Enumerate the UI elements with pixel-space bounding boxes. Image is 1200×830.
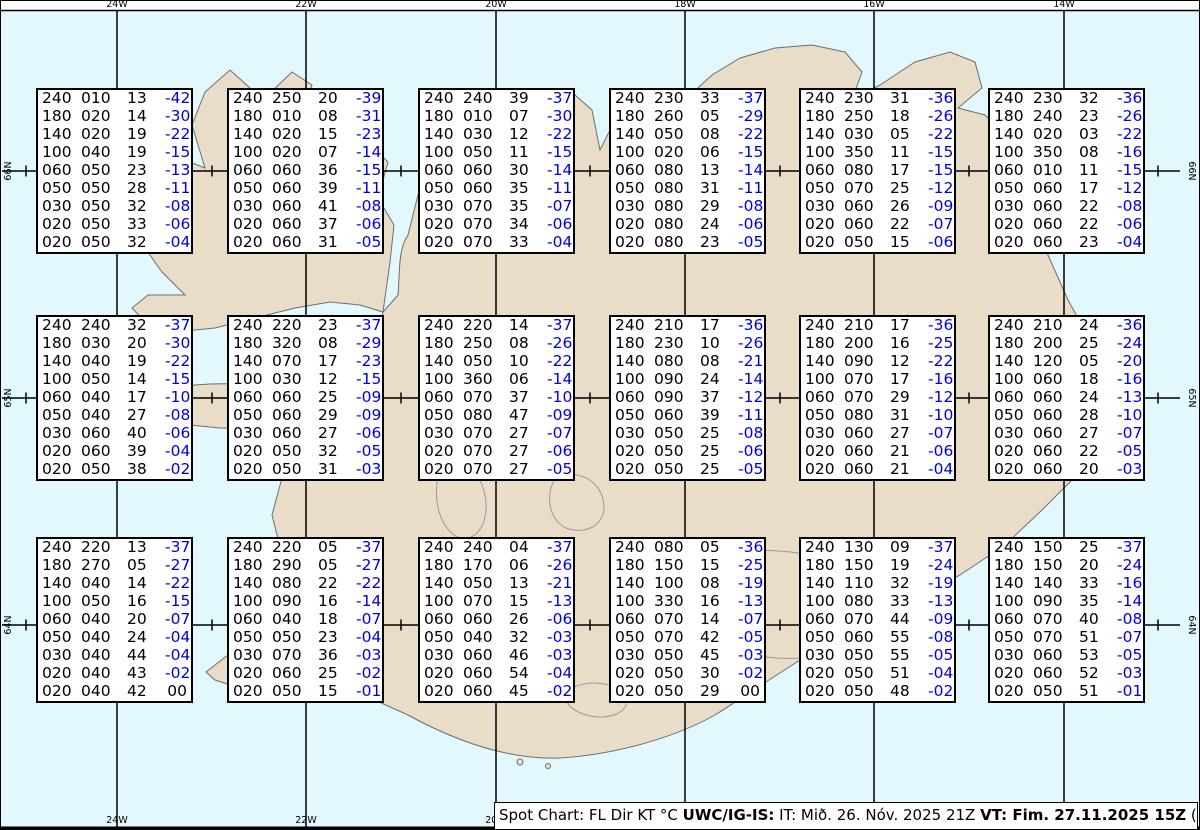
temp-value: -04 — [356, 629, 381, 647]
temp-value: -14 — [738, 371, 763, 389]
fl-value: 180 — [615, 557, 654, 575]
fl-value: 240 — [42, 90, 81, 108]
dir-value: 060 — [463, 683, 509, 701]
station-data-row: 18026005-29 — [615, 108, 760, 126]
fl-value: 020 — [994, 665, 1033, 683]
dir-value: 090 — [272, 593, 318, 611]
kt-value: 08 — [318, 335, 356, 353]
dir-value: 090 — [654, 389, 700, 407]
fl-value: 140 — [805, 575, 844, 593]
fl-value: 020 — [233, 683, 272, 701]
station-data-row: 10006018-16 — [994, 371, 1139, 389]
latitude-label: 64N — [1186, 615, 1196, 634]
longitude-label: 14W — [1053, 0, 1074, 10]
kt-value: 29 — [700, 683, 738, 701]
fl-value: 050 — [805, 407, 844, 425]
temp-value: -37 — [165, 317, 190, 335]
fl-value: 100 — [994, 593, 1033, 611]
kt-value: 08 — [700, 575, 738, 593]
fl-value: 100 — [805, 371, 844, 389]
kt-value: 03 — [1079, 126, 1117, 144]
fl-value: 020 — [994, 683, 1033, 701]
fl-value: 020 — [233, 665, 272, 683]
station-data-row: 05008047-09 — [424, 407, 569, 425]
temp-value: -26 — [738, 335, 763, 353]
station-data-row: 18032008-29 — [233, 335, 378, 353]
fl-value: 020 — [615, 683, 654, 701]
station-data-row: 18025018-26 — [805, 108, 950, 126]
kt-value: 15 — [318, 683, 356, 701]
dir-value: 050 — [81, 216, 127, 234]
fl-value: 020 — [424, 665, 463, 683]
dir-value: 070 — [463, 461, 509, 479]
kt-value: 23 — [127, 162, 165, 180]
fl-value: 180 — [615, 108, 654, 126]
station-data-row: 18027005-27 — [42, 557, 187, 575]
kt-value: 25 — [890, 180, 928, 198]
temp-value: -02 — [356, 665, 381, 683]
temp-value: -05 — [1117, 647, 1142, 665]
station-data-row: 10005016-15 — [42, 593, 187, 611]
dir-value: 050 — [844, 665, 890, 683]
kt-value: 36 — [318, 162, 356, 180]
fl-value: 140 — [424, 126, 463, 144]
fl-value: 140 — [615, 353, 654, 371]
fl-value: 020 — [42, 443, 81, 461]
kt-value: 05 — [1079, 353, 1117, 371]
fl-value: 240 — [994, 317, 1033, 335]
latitude-label: 64N — [4, 615, 14, 634]
fl-value: 020 — [615, 443, 654, 461]
fl-value: 020 — [424, 216, 463, 234]
kt-value: 19 — [127, 353, 165, 371]
dir-value: 060 — [1033, 461, 1079, 479]
dir-value: 250 — [463, 335, 509, 353]
temp-value: -06 — [547, 443, 572, 461]
kt-value: 24 — [1079, 317, 1117, 335]
dir-value: 120 — [1033, 353, 1079, 371]
fl-value: 060 — [615, 389, 654, 407]
kt-value: 23 — [318, 629, 356, 647]
fl-value: 030 — [42, 647, 81, 665]
kt-value: 05 — [700, 108, 738, 126]
station-data-row: 05004024-04 — [42, 629, 187, 647]
kt-value: 16 — [890, 335, 928, 353]
kt-value: 52 — [1079, 665, 1117, 683]
temp-value: -36 — [928, 317, 953, 335]
fl-value: 240 — [994, 539, 1033, 557]
fl-value: 050 — [615, 407, 654, 425]
kt-value: 27 — [509, 461, 547, 479]
station-data-row: 10036006-14 — [424, 371, 569, 389]
dir-value: 050 — [81, 180, 127, 198]
dir-value: 070 — [654, 629, 700, 647]
dir-value: 030 — [81, 335, 127, 353]
dir-value: 050 — [272, 629, 318, 647]
dir-value: 150 — [1033, 557, 1079, 575]
temp-value: -15 — [547, 144, 572, 162]
station-data-row: 14005010-22 — [424, 353, 569, 371]
longitude-label: 22W — [295, 816, 316, 826]
fl-value: 180 — [42, 108, 81, 126]
fl-value: 100 — [42, 593, 81, 611]
kt-value: 39 — [127, 443, 165, 461]
temp-value: -15 — [165, 144, 190, 162]
fl-value: 020 — [424, 234, 463, 252]
station-data-row: 02007027-06 — [424, 443, 569, 461]
kt-value: 25 — [700, 425, 738, 443]
dir-value: 140 — [1033, 575, 1079, 593]
dir-value: 150 — [1033, 539, 1079, 557]
station-data-row: 06004020-07 — [42, 611, 187, 629]
dir-value: 100 — [654, 575, 700, 593]
station-data-row: 03006040-06 — [42, 425, 187, 443]
kt-value: 38 — [127, 461, 165, 479]
temp-value: -30 — [165, 108, 190, 126]
temp-value: -03 — [547, 629, 572, 647]
latitude-label: 66N — [1186, 161, 1196, 180]
dir-value: 210 — [654, 317, 700, 335]
fl-value: 240 — [615, 317, 654, 335]
kt-value: 32 — [127, 198, 165, 216]
dir-value: 040 — [81, 407, 127, 425]
dir-value: 040 — [81, 144, 127, 162]
kt-value: 31 — [318, 234, 356, 252]
dir-value: 040 — [81, 611, 127, 629]
dir-value: 050 — [654, 461, 700, 479]
dir-value: 010 — [272, 108, 318, 126]
station-data-row: 02005038-02 — [42, 461, 187, 479]
station-data-row: 02006022-05 — [994, 443, 1139, 461]
dir-value: 070 — [272, 647, 318, 665]
kt-value: 51 — [890, 665, 928, 683]
fl-value: 240 — [42, 539, 81, 557]
station-data-row: 05007042-05 — [615, 629, 760, 647]
fl-value: 020 — [615, 461, 654, 479]
dir-value: 050 — [844, 234, 890, 252]
temp-value: -36 — [1117, 317, 1142, 335]
fl-value: 140 — [42, 575, 81, 593]
temp-value: -26 — [928, 108, 953, 126]
kt-value: 12 — [509, 126, 547, 144]
station-data-row: 06009037-12 — [615, 389, 760, 407]
fl-value: 030 — [42, 425, 81, 443]
dir-value: 080 — [272, 575, 318, 593]
dir-value: 060 — [844, 425, 890, 443]
kt-value: 37 — [509, 389, 547, 407]
station-data-row: 02006025-02 — [233, 665, 378, 683]
temp-value: -21 — [547, 575, 572, 593]
temp-value: -24 — [1117, 335, 1142, 353]
fl-value: 060 — [233, 611, 272, 629]
fl-value: 060 — [805, 389, 844, 407]
dir-value: 080 — [844, 407, 890, 425]
fl-value: 100 — [233, 593, 272, 611]
dir-value: 080 — [654, 162, 700, 180]
temp-value: -15 — [928, 162, 953, 180]
dir-value: 060 — [844, 198, 890, 216]
temp-value: -22 — [738, 126, 763, 144]
station-data-row: 18001008-31 — [233, 108, 378, 126]
station-data-row: 14008022-22 — [233, 575, 378, 593]
dir-value: 050 — [463, 144, 509, 162]
dir-value: 050 — [272, 443, 318, 461]
fl-value: 060 — [615, 611, 654, 629]
station-box: 24001013-4218002014-3014002019-221000401… — [36, 88, 193, 254]
temp-value: -20 — [1117, 353, 1142, 371]
dir-value: 220 — [81, 539, 127, 557]
fl-value: 020 — [42, 683, 81, 701]
station-data-row: 03006026-09 — [805, 198, 950, 216]
kt-value: 11 — [509, 144, 547, 162]
temp-value: -03 — [547, 647, 572, 665]
longitude-label: 24W — [106, 0, 127, 10]
fl-value: 140 — [994, 126, 1033, 144]
kt-value: 31 — [318, 461, 356, 479]
fl-value: 100 — [994, 144, 1033, 162]
fl-value: 050 — [615, 180, 654, 198]
station-data-row: 18001007-30 — [424, 108, 569, 126]
dir-value: 200 — [1033, 335, 1079, 353]
fl-value: 030 — [805, 198, 844, 216]
station-data-row: 06007029-12 — [805, 389, 950, 407]
temp-value: -07 — [928, 216, 953, 234]
dir-value: 060 — [463, 665, 509, 683]
dir-value: 060 — [844, 629, 890, 647]
temp-value: -14 — [1117, 593, 1142, 611]
temp-value: -13 — [547, 593, 572, 611]
temp-value: -24 — [1117, 557, 1142, 575]
station-data-row: 05006039-11 — [615, 407, 760, 425]
dir-value: 270 — [81, 557, 127, 575]
station-data-row: 06006026-06 — [424, 611, 569, 629]
station-data-row: 14011032-19 — [805, 575, 950, 593]
station-data-row: 06001011-15 — [994, 162, 1139, 180]
station-data-row: 03005025-08 — [615, 425, 760, 443]
dir-value: 080 — [654, 198, 700, 216]
kt-value: 28 — [1079, 407, 1117, 425]
temp-value: -08 — [738, 198, 763, 216]
temp-value: -05 — [928, 647, 953, 665]
fl-value: 240 — [424, 90, 463, 108]
dir-value: 290 — [272, 557, 318, 575]
temp-value: -42 — [165, 90, 190, 108]
station-data-row: 05006017-12 — [994, 180, 1139, 198]
fl-value: 030 — [233, 198, 272, 216]
temp-value: -22 — [547, 126, 572, 144]
dir-value: 240 — [81, 317, 127, 335]
station-data-row: 02008024-06 — [615, 216, 760, 234]
dir-value: 150 — [654, 557, 700, 575]
station-data-row: 14005008-22 — [615, 126, 760, 144]
station-data-row: 03006027-06 — [233, 425, 378, 443]
temp-value: -27 — [356, 557, 381, 575]
dir-value: 050 — [81, 162, 127, 180]
station-box: 24022005-3718029005-2714008022-221000901… — [227, 537, 384, 703]
dir-value: 070 — [654, 611, 700, 629]
temp-value: -03 — [1117, 461, 1142, 479]
temp-value: -13 — [928, 593, 953, 611]
kt-value: 40 — [127, 425, 165, 443]
fl-value: 180 — [233, 108, 272, 126]
station-data-row: 14004014-22 — [42, 575, 187, 593]
kt-value: 23 — [700, 234, 738, 252]
station-data-row: 06005023-13 — [42, 162, 187, 180]
dir-value: 010 — [81, 90, 127, 108]
fl-value: 020 — [42, 216, 81, 234]
station-data-row: 24023033-37 — [615, 90, 760, 108]
dir-value: 060 — [1033, 443, 1079, 461]
station-data-row: 06007044-09 — [805, 611, 950, 629]
kt-value: 20 — [318, 90, 356, 108]
fl-value: 060 — [615, 162, 654, 180]
temp-value: -06 — [928, 234, 953, 252]
kt-value: 23 — [1079, 108, 1117, 126]
kt-value: 25 — [318, 665, 356, 683]
temp-value: -02 — [165, 665, 190, 683]
kt-value: 08 — [700, 353, 738, 371]
temp-value: -36 — [1117, 90, 1142, 108]
dir-value: 060 — [1033, 216, 1079, 234]
station-data-row: 10009035-14 — [994, 593, 1139, 611]
temp-value: -11 — [547, 180, 572, 198]
temp-value: -14 — [547, 371, 572, 389]
fl-value: 050 — [994, 629, 1033, 647]
fl-value: 240 — [615, 90, 654, 108]
dir-value: 030 — [463, 126, 509, 144]
fl-value: 140 — [994, 353, 1033, 371]
station-data-row: 02005025-06 — [615, 443, 760, 461]
dir-value: 050 — [463, 575, 509, 593]
station-data-row: 06007014-07 — [615, 611, 760, 629]
station-data-row: 05008031-11 — [615, 180, 760, 198]
fl-value: 240 — [424, 539, 463, 557]
kt-value: 22 — [1079, 198, 1117, 216]
station-box: 24024032-3718003020-3014004019-221000501… — [36, 315, 193, 481]
kt-value: 06 — [509, 371, 547, 389]
temp-value: -07 — [547, 198, 572, 216]
station-data-row: 02005048-02 — [805, 683, 950, 701]
station-data-row: 02007033-04 — [424, 234, 569, 252]
dir-value: 090 — [654, 371, 700, 389]
spot-chart-page: 24W22W20W18W16W14W 24W22W20W 66N65N64N 6… — [0, 0, 1200, 830]
dir-value: 070 — [844, 371, 890, 389]
station-data-row: 05006055-08 — [805, 629, 950, 647]
fl-value: 180 — [805, 108, 844, 126]
station-box: 24025020-3918001008-3114002015-231000200… — [227, 88, 384, 254]
caption-issue-time: IT: Mið. 26. Nóv. 2025 21Z — [774, 806, 980, 824]
temp-value: -31 — [356, 108, 381, 126]
kt-value: 23 — [318, 317, 356, 335]
temp-value: -10 — [1117, 407, 1142, 425]
kt-value: 27 — [127, 407, 165, 425]
station-data-row: 10035011-15 — [805, 144, 950, 162]
kt-value: 08 — [509, 335, 547, 353]
fl-value: 100 — [994, 371, 1033, 389]
kt-value: 26 — [509, 611, 547, 629]
dir-value: 060 — [844, 461, 890, 479]
station-data-row: 0200502900 — [615, 683, 760, 701]
station-data-row: 10005014-15 — [42, 371, 187, 389]
fl-value: 060 — [42, 162, 81, 180]
dir-value: 050 — [272, 461, 318, 479]
dir-value: 050 — [654, 647, 700, 665]
temp-value: -25 — [738, 557, 763, 575]
temp-value: -09 — [928, 611, 953, 629]
dir-value: 070 — [463, 198, 509, 216]
station-data-row: 02006039-04 — [42, 443, 187, 461]
kt-value: 07 — [318, 144, 356, 162]
station-data-row: 24025020-39 — [233, 90, 378, 108]
temp-value: -26 — [547, 335, 572, 353]
temp-value: -11 — [738, 180, 763, 198]
station-data-row: 03006027-07 — [805, 425, 950, 443]
fl-value: 020 — [805, 461, 844, 479]
dir-value: 060 — [463, 647, 509, 665]
station-data-row: 02005031-03 — [233, 461, 378, 479]
station-data-row: 06007037-10 — [424, 389, 569, 407]
kt-value: 20 — [1079, 557, 1117, 575]
station-data-row: 24022014-37 — [424, 317, 569, 335]
dir-value: 060 — [463, 162, 509, 180]
kt-value: 53 — [1079, 647, 1117, 665]
fl-value: 020 — [42, 665, 81, 683]
kt-value: 06 — [509, 557, 547, 575]
dir-value: 060 — [272, 198, 318, 216]
temp-value: -11 — [165, 180, 190, 198]
temp-value: -10 — [547, 389, 572, 407]
kt-value: 39 — [318, 180, 356, 198]
dir-value: 020 — [272, 126, 318, 144]
fl-value: 020 — [615, 665, 654, 683]
dir-value: 060 — [272, 389, 318, 407]
dir-value: 350 — [1033, 144, 1079, 162]
station-data-row: 02005051-04 — [805, 665, 950, 683]
fl-value: 030 — [994, 198, 1033, 216]
temp-value: -23 — [356, 126, 381, 144]
station-data-row: 10002006-15 — [615, 144, 760, 162]
dir-value: 080 — [654, 353, 700, 371]
temp-value: -05 — [1117, 443, 1142, 461]
dir-value: 060 — [272, 180, 318, 198]
fl-value: 060 — [805, 611, 844, 629]
temp-value: -29 — [356, 335, 381, 353]
kt-value: 14 — [509, 317, 547, 335]
temp-value: -26 — [1117, 108, 1142, 126]
station-data-row: 06008017-15 — [805, 162, 950, 180]
dir-value: 070 — [844, 611, 890, 629]
temp-value: -36 — [738, 539, 763, 557]
temp-value: -24 — [928, 557, 953, 575]
station-data-row: 18002014-30 — [42, 108, 187, 126]
dir-value: 070 — [272, 353, 318, 371]
temp-value: -06 — [165, 216, 190, 234]
temp-value: -05 — [738, 629, 763, 647]
longitude-label: 20W — [485, 0, 506, 10]
fl-value: 050 — [233, 407, 272, 425]
station-data-row: 24001013-42 — [42, 90, 187, 108]
temp-value: -37 — [356, 317, 381, 335]
temp-value: -06 — [165, 425, 190, 443]
station-data-row: 06006025-09 — [233, 389, 378, 407]
station-data-row: 14002003-22 — [994, 126, 1139, 144]
kt-value: 43 — [127, 665, 165, 683]
station-box: 24023031-3618025018-2614003005-221003501… — [799, 88, 956, 254]
temp-value: -07 — [1117, 425, 1142, 443]
fl-value: 020 — [233, 461, 272, 479]
station-data-row: 02005032-04 — [42, 234, 187, 252]
dir-value: 320 — [272, 335, 318, 353]
